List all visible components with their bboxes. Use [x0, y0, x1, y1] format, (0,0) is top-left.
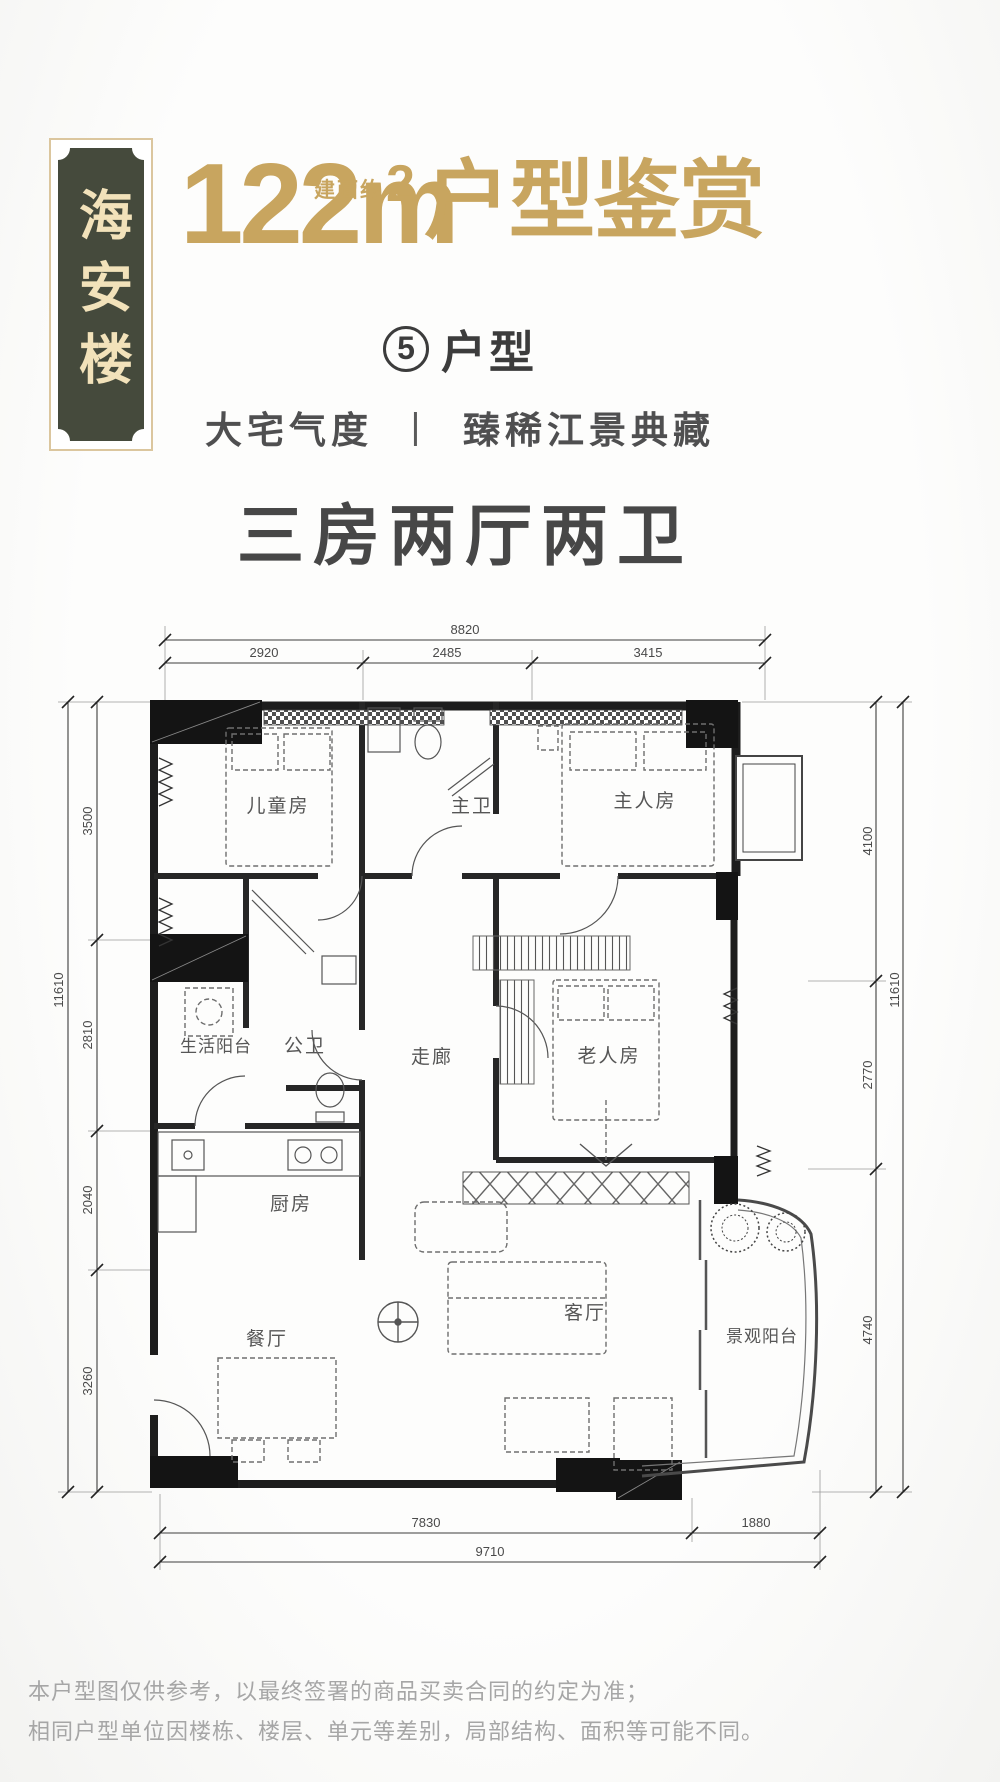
- bay-window: [736, 756, 802, 860]
- room-label-kitchen: 厨房: [270, 1193, 312, 1215]
- tagline: 大宅气度 丨 臻稀江景典藏: [0, 400, 920, 454]
- dim-top-seg-1: 2920: [250, 645, 279, 660]
- tagline-divider: 丨: [397, 400, 439, 454]
- dim-right-seg-1: 4100: [860, 827, 875, 856]
- room-label-view-balcony: 景观阳台: [726, 1327, 798, 1346]
- disclaimer-line-1: 本户型图仅供参考，以最终签署的商品买卖合同的约定为准；: [28, 1672, 764, 1712]
- room-label-corridor: 走廊: [411, 1046, 453, 1068]
- door-arcs: [154, 826, 618, 1456]
- dim-left-total: 11610: [51, 972, 66, 1007]
- room-label-living-balcony: 生活阳台: [180, 1037, 252, 1056]
- unit-type-row: 5 户型: [0, 316, 920, 381]
- room-label-master-bath: 主卫: [451, 795, 493, 817]
- dim-bottom-seg-2: 1880: [742, 1515, 771, 1530]
- dim-right-seg-3: 4740: [860, 1316, 875, 1345]
- dim-left-seg-3: 2040: [80, 1186, 95, 1215]
- headline-suffix: 户型鉴赏: [424, 158, 764, 244]
- unit-number-circle: 5: [383, 326, 429, 372]
- window-strips: [264, 710, 682, 725]
- kitchen-counter: [158, 1132, 360, 1232]
- exterior-walls: [150, 702, 736, 1488]
- room-label-public-bath: 公卫: [284, 1036, 326, 1057]
- room-label-elder-room: 老人房: [577, 1045, 640, 1067]
- hatched-beam-strip: [463, 1172, 689, 1204]
- dim-right-seg-2: 2770: [860, 1061, 875, 1090]
- dim-left-seg-2: 2810: [80, 1021, 95, 1050]
- furniture: [185, 724, 714, 1470]
- dim-top-seg-2: 2485: [433, 645, 462, 660]
- dim-right-total: 11610: [887, 972, 902, 1007]
- dim-bottom-total: 9710: [476, 1544, 505, 1559]
- dim-left-seg-1: 3500: [80, 807, 95, 836]
- unit-type-label: 户型: [441, 316, 537, 381]
- tagline-left: 大宅气度: [205, 400, 373, 454]
- structural-columns: [150, 700, 738, 1500]
- area-superscript: 2: [386, 158, 415, 210]
- disclaimer-line-2: 相同户型单位因楼栋、楼层、单元等差别，局部结构、面积等可能不同。: [28, 1712, 764, 1752]
- room-label-dining: 餐厅: [246, 1328, 288, 1350]
- dim-bottom-seg-1: 7830: [412, 1515, 441, 1530]
- poster-page: 海安楼 122m 建面约 2 户型鉴赏 5 户型 大宅气度 丨 臻稀江景典藏 三…: [0, 0, 1000, 1782]
- room-label-childrens-room: 儿童房: [246, 795, 309, 817]
- coil-window-symbols: [159, 758, 770, 1176]
- dim-top-seg-3: 3415: [634, 645, 663, 660]
- dim-top-total: 8820: [451, 622, 480, 637]
- dim-left-seg-4: 3260: [80, 1367, 95, 1396]
- disclaimer: 本户型图仅供参考，以最终签署的商品买卖合同的约定为准； 相同户型单位因楼栋、楼层…: [28, 1672, 764, 1752]
- room-label-master-bedroom: 主人房: [613, 790, 676, 812]
- balcony-trees: [711, 1204, 805, 1252]
- tagline-right: 臻稀江景典藏: [463, 400, 715, 454]
- area-prefix: 建面约: [314, 174, 383, 204]
- room-label-living-room: 客厅: [564, 1302, 606, 1324]
- floor-plan: 8820 2920 2485 3415 11610 3500 2810 2040…: [0, 560, 1000, 1600]
